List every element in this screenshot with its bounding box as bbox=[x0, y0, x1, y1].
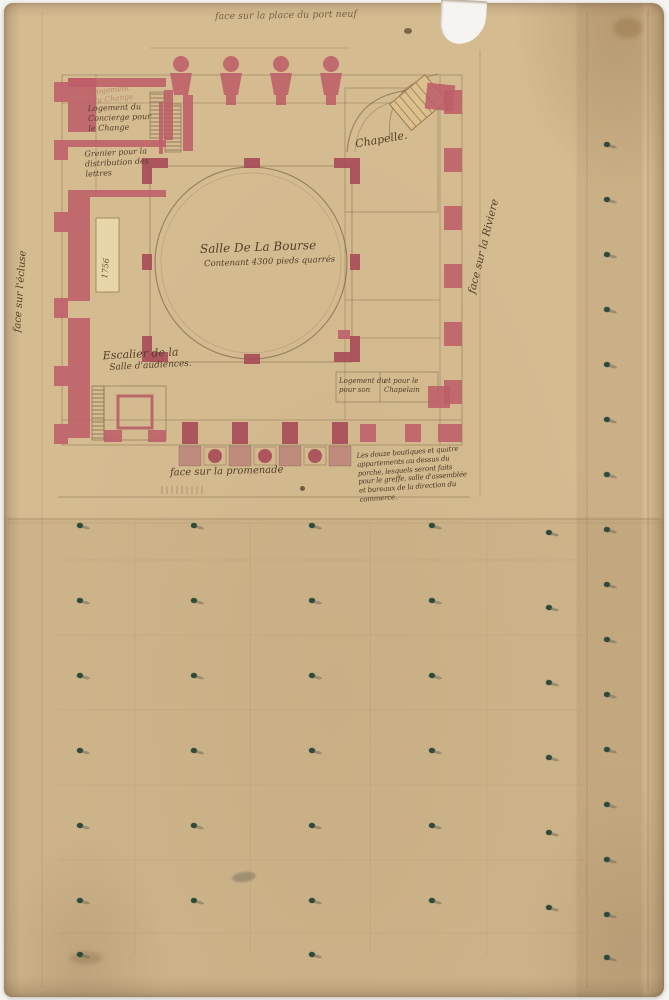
label-date-mark: 1756 bbox=[100, 258, 112, 279]
caption-top-facade: face sur la place du port neuf bbox=[215, 9, 357, 23]
label-chaplain-left: Logement du pour son bbox=[339, 377, 386, 395]
scanned-plan-sheet: face sur la place du port neuf face sur … bbox=[0, 0, 669, 1000]
note-paragraph: Les douze boutiques et quatre appartemen… bbox=[356, 444, 468, 504]
label-grenier-room: Grenier pour la distribution des lettres bbox=[84, 146, 149, 179]
label-chaplain-right: et pour le Chapelain bbox=[384, 377, 420, 395]
label-stair-audiences: Escalier de la Salle d'audiences. bbox=[102, 345, 192, 375]
label-concierge-room: Logement du Concierge pour le Change bbox=[87, 102, 151, 134]
